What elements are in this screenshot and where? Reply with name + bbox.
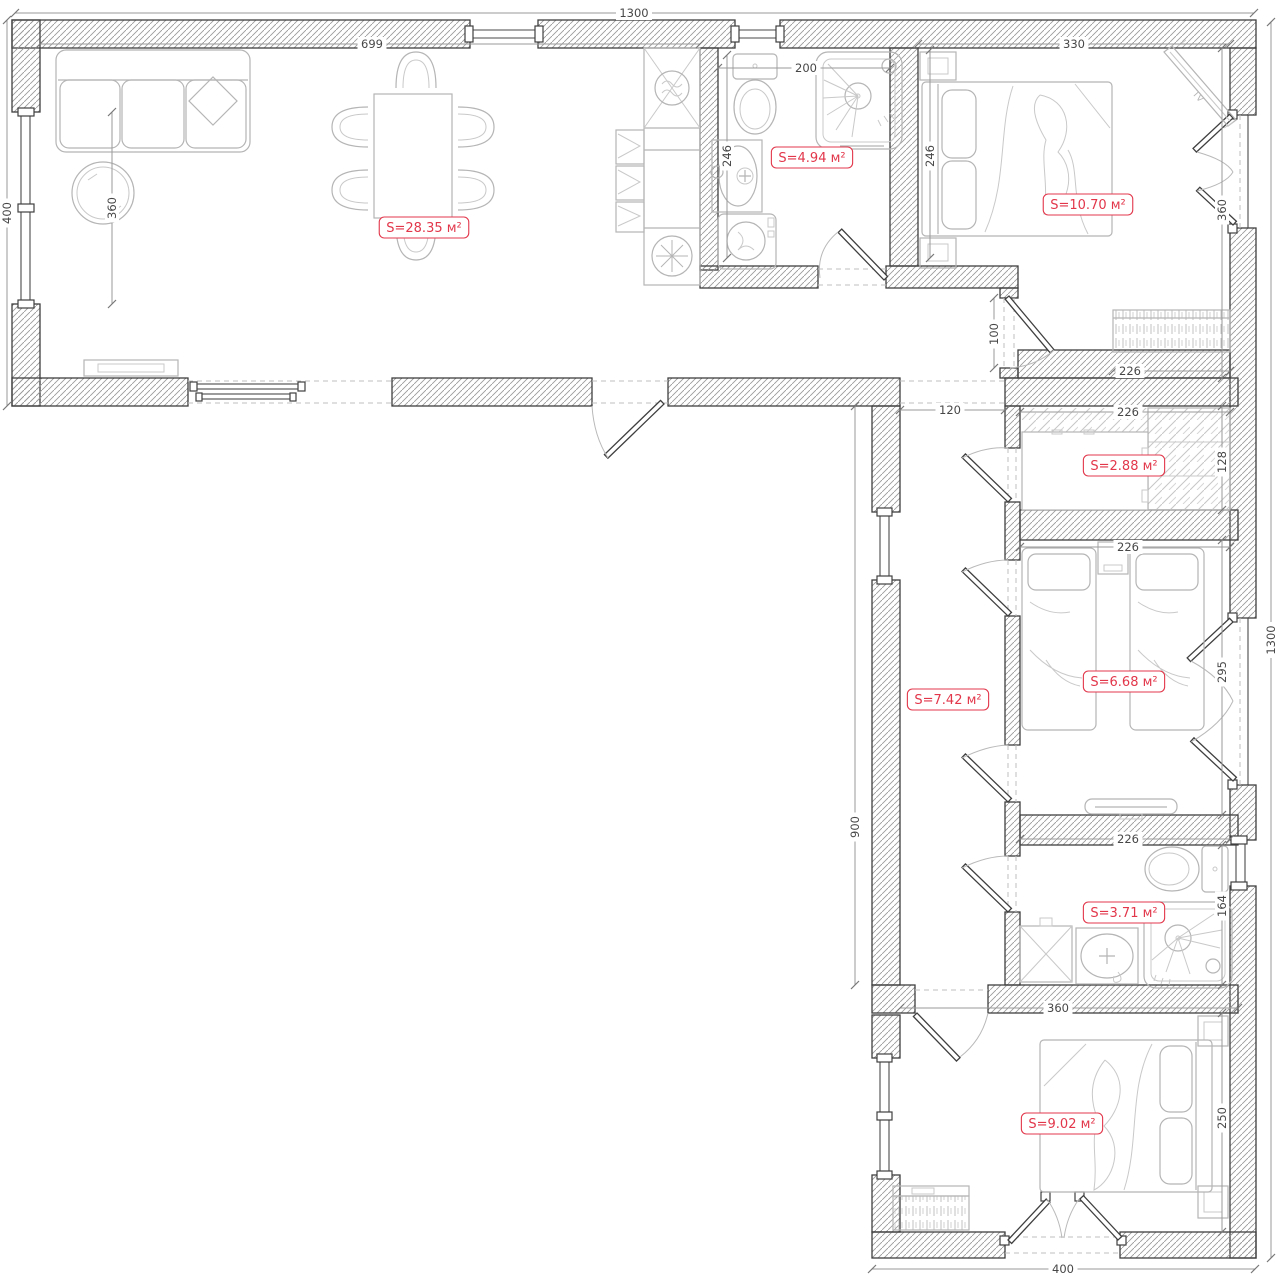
nightstand-bedroom2-b	[1198, 1186, 1228, 1218]
svg-text:200: 200	[795, 61, 817, 75]
svg-text:1300: 1300	[619, 6, 648, 20]
window-kids-right	[1187, 613, 1248, 789]
svg-text:226: 226	[1117, 540, 1139, 554]
svg-text:226: 226	[1117, 832, 1139, 846]
floor-plan-drawing: TV	[0, 0, 1280, 1277]
svg-text:360: 360	[105, 197, 119, 219]
room-label-storage: S=2.88 м²	[1083, 455, 1164, 476]
nightstand-bedroom2-a	[1198, 1016, 1228, 1046]
svg-text:1300: 1300	[1264, 625, 1278, 654]
svg-text:128: 128	[1215, 451, 1229, 473]
svg-text:S=10.70 м²: S=10.70 м²	[1050, 198, 1126, 213]
room-label-bedroom-1: S=10.70 м²	[1043, 194, 1133, 215]
svg-text:226: 226	[1117, 405, 1139, 419]
dimension: 120	[896, 403, 1009, 417]
furniture: TV	[56, 40, 1236, 1230]
entrance-door	[592, 400, 664, 458]
sliding-door-living	[190, 382, 305, 401]
dimension: 246	[720, 51, 734, 262]
svg-text:699: 699	[361, 37, 383, 51]
svg-text:295: 295	[1215, 661, 1229, 683]
window-top-living	[465, 26, 543, 42]
svg-text:S=3.71 м²: S=3.71 м²	[1090, 906, 1157, 921]
dimension: 1300	[11, 6, 1258, 20]
toilet-bathroom2	[1145, 846, 1228, 892]
window-top-bath	[731, 26, 784, 42]
room-label-bathroom-1: S=4.94 м²	[771, 147, 852, 168]
single-bed-kids-b	[1130, 548, 1204, 730]
dimension: 164	[1215, 841, 1229, 989]
floor-plan-canvas: TV	[0, 0, 1280, 1277]
dimension: 360	[105, 108, 119, 308]
washbasin-bathroom1	[711, 140, 762, 212]
tv-console	[84, 360, 178, 376]
door-bedroom2	[913, 1013, 988, 1061]
svg-text:400: 400	[0, 202, 14, 224]
sofa	[56, 50, 250, 152]
svg-text:S=6.68 м²: S=6.68 м²	[1090, 675, 1157, 690]
nightstand-bedroom1-b	[920, 238, 956, 268]
window-bedroom2-left	[877, 1054, 892, 1179]
kitchen-counter	[616, 48, 700, 285]
washbasin-bathroom2	[1076, 928, 1138, 984]
svg-text:S=7.42 м²: S=7.42 м²	[914, 693, 981, 708]
door-storage	[962, 448, 1012, 502]
washing-machine-bathroom2	[1020, 918, 1072, 982]
room-label-living-dining-room: S=28.35 м²	[379, 217, 469, 238]
svg-text:164: 164	[1215, 895, 1229, 917]
dimension: 295	[1215, 536, 1229, 819]
svg-text:226: 226	[1119, 364, 1141, 378]
dining-table	[374, 94, 452, 218]
window-bathroom2-right	[1231, 836, 1247, 890]
single-bed-kids-a	[1022, 548, 1096, 730]
svg-text:330: 330	[1063, 37, 1085, 51]
tv-label: TV	[1189, 89, 1205, 106]
tv-corner-panel: TV	[1164, 40, 1236, 128]
door-kids-south	[962, 745, 1012, 802]
window-left-living	[18, 108, 34, 308]
shower-bathroom1	[816, 52, 902, 149]
door-kids-north	[962, 560, 1012, 616]
dimension: 900	[848, 402, 862, 989]
svg-text:100: 100	[987, 323, 1001, 345]
dimension: 200	[714, 61, 894, 75]
svg-text:S=2.88 м²: S=2.88 м²	[1090, 459, 1157, 474]
toilet-bathroom1	[733, 54, 777, 134]
dimension: 100	[987, 294, 1001, 372]
coffee-table	[72, 162, 134, 224]
svg-text:360: 360	[1215, 199, 1229, 221]
room-label-bedroom-2: S=9.02 м²	[1021, 1113, 1102, 1134]
svg-text:S=28.35 м²: S=28.35 м²	[386, 221, 462, 236]
room-label-kids-bedroom: S=6.68 м²	[1083, 671, 1164, 692]
svg-text:S=4.94 м²: S=4.94 м²	[778, 151, 845, 166]
svg-text:120: 120	[939, 403, 961, 417]
svg-text:400: 400	[1052, 1262, 1074, 1276]
dimension: 1300	[1264, 18, 1278, 1262]
room-label-hallway: S=7.42 м²	[907, 689, 988, 710]
nightstand-bedroom1-a	[920, 52, 956, 80]
svg-text:246: 246	[720, 145, 734, 167]
svg-text:900: 900	[848, 816, 862, 838]
bookshelf-bedroom2	[893, 1186, 969, 1230]
svg-text:250: 250	[1215, 1107, 1229, 1129]
stove-icon	[652, 236, 692, 276]
room-label-bathroom-2: S=3.71 м²	[1083, 902, 1164, 923]
svg-text:360: 360	[1047, 1001, 1069, 1015]
dimension: 246	[923, 46, 937, 262]
dimension: 226	[1016, 540, 1234, 554]
svg-text:S=9.02 м²: S=9.02 м²	[1028, 1117, 1095, 1132]
svg-text:246: 246	[923, 145, 937, 167]
window-hallway-left	[877, 508, 892, 584]
wardrobe-bedroom1	[1113, 310, 1230, 352]
door-bathroom2	[962, 856, 1012, 912]
dimension: 400	[868, 1262, 1259, 1276]
dimension: 250	[1215, 1009, 1229, 1236]
door-openings	[188, 269, 1120, 1253]
door-bathroom1	[819, 229, 887, 280]
